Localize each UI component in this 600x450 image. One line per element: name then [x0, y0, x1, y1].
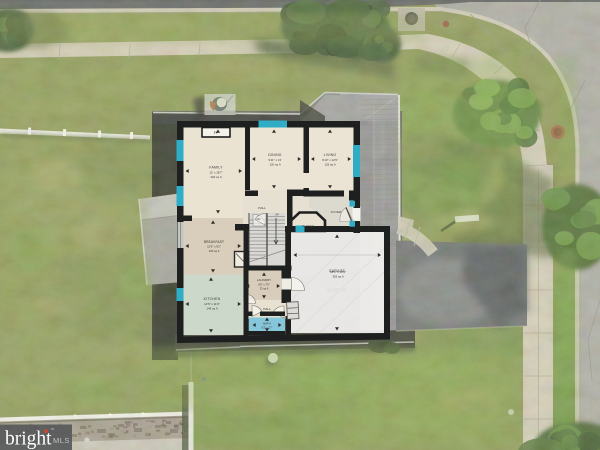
svg-text:HALL: HALL: [263, 307, 271, 311]
svg-text:LAUNDRY: LAUNDRY: [257, 278, 271, 282]
svg-text:5'3" x 2'7": 5'3" x 2'7": [262, 327, 273, 330]
svg-text:LIVING: LIVING: [324, 153, 337, 157]
svg-text:12'6" x 9'2": 12'6" x 9'2": [207, 245, 221, 249]
svg-text:125 sq ft: 125 sq ft: [324, 163, 335, 167]
svg-text:MLS: MLS: [53, 436, 70, 445]
svg-text:202 sq ft: 202 sq ft: [210, 175, 221, 179]
svg-text:9'11" x 13': 9'11" x 13': [268, 158, 281, 162]
svg-text:18'4" x 19'4": 18'4" x 19'4": [330, 270, 346, 274]
svg-text:33 sq ft: 33 sq ft: [260, 287, 269, 291]
svg-text:9'10" x 12'9": 9'10" x 12'9": [322, 158, 338, 162]
svg-text:BATH: BATH: [263, 322, 271, 326]
svg-text:HALL: HALL: [258, 206, 266, 210]
svg-text:12' x 18'7": 12' x 18'7": [209, 171, 222, 175]
svg-text:120 sq ft: 120 sq ft: [269, 163, 280, 167]
svg-text:FOYER: FOYER: [331, 210, 342, 214]
svg-text:6'6" x 7'9": 6'6" x 7'9": [258, 283, 269, 287]
svg-text:FAMILY: FAMILY: [209, 166, 223, 170]
svg-text:12'6" x 11'9": 12'6" x 11'9": [204, 302, 220, 306]
svg-text:DINING: DINING: [268, 153, 282, 157]
svg-text:KITCHEN: KITCHEN: [204, 297, 221, 301]
svg-text:UP: UP: [275, 213, 279, 217]
svg-text:DN: DN: [257, 217, 261, 221]
svg-text:BREAKFAST: BREAKFAST: [204, 240, 224, 244]
svg-text:100 sq ft: 100 sq ft: [209, 249, 220, 253]
svg-text:146 sq ft: 146 sq ft: [206, 307, 217, 311]
svg-text:CLOSET: CLOSET: [302, 224, 314, 228]
svg-text:™: ™: [50, 427, 54, 432]
svg-text:355 sq ft: 355 sq ft: [332, 275, 343, 279]
